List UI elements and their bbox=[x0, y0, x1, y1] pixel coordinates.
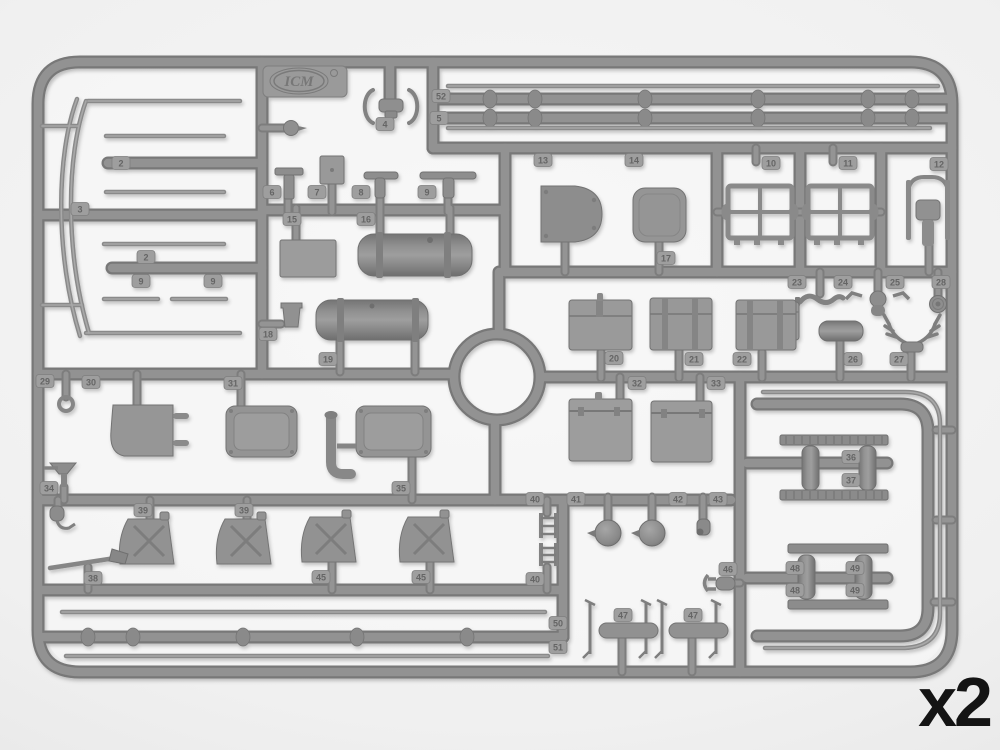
part-number-tag: 15 bbox=[283, 213, 301, 226]
part-number-tag: 32 bbox=[628, 377, 646, 390]
svg-text:14: 14 bbox=[629, 155, 639, 165]
part-seat-31 bbox=[226, 406, 297, 457]
svg-text:50: 50 bbox=[553, 618, 563, 628]
svg-text:29: 29 bbox=[40, 376, 50, 386]
svg-text:48: 48 bbox=[790, 563, 800, 573]
svg-text:5: 5 bbox=[436, 113, 441, 123]
svg-text:13: 13 bbox=[538, 155, 548, 165]
part-number-tag: 25 bbox=[886, 276, 904, 289]
svg-text:15: 15 bbox=[287, 214, 297, 224]
part-number-tag: 24 bbox=[834, 276, 852, 289]
part-number-tag: 12 bbox=[930, 158, 948, 171]
svg-text:52: 52 bbox=[436, 91, 446, 101]
svg-text:47: 47 bbox=[618, 610, 628, 620]
part-number-tag: 10 bbox=[762, 157, 780, 170]
part-number-tag: 33 bbox=[707, 377, 725, 390]
part-lamp-43 bbox=[697, 519, 711, 536]
part-plate-15 bbox=[280, 240, 336, 277]
svg-text:51: 51 bbox=[553, 642, 563, 652]
part-number-tag: 30 bbox=[82, 376, 100, 389]
svg-text:40: 40 bbox=[530, 574, 540, 584]
part-wheel-28 bbox=[930, 296, 947, 313]
part-fuel-tank-16 bbox=[358, 232, 472, 278]
svg-text:9: 9 bbox=[424, 187, 429, 197]
part-number-tag: 26 bbox=[844, 353, 862, 366]
part-number-tag: 39 bbox=[235, 504, 253, 517]
svg-text:33: 33 bbox=[711, 378, 721, 388]
photo-canvas: ICM bbox=[0, 0, 1000, 750]
svg-text:45: 45 bbox=[416, 572, 426, 582]
svg-text:9: 9 bbox=[138, 276, 143, 286]
part-number-tag: 27 bbox=[890, 353, 908, 366]
part-number-tag: 2 bbox=[137, 251, 155, 264]
svg-text:27: 27 bbox=[894, 354, 904, 364]
svg-text:6: 6 bbox=[269, 187, 274, 197]
svg-text:19: 19 bbox=[323, 354, 333, 364]
svg-text:7: 7 bbox=[314, 187, 319, 197]
part-number-tag: 11 bbox=[839, 157, 857, 170]
part-number-tag: 48 bbox=[786, 584, 804, 597]
svg-text:40: 40 bbox=[530, 494, 540, 504]
svg-text:24: 24 bbox=[838, 277, 848, 287]
part-number-tag: 40 bbox=[526, 573, 544, 586]
part-number-tag: 2 bbox=[112, 157, 130, 170]
svg-text:20: 20 bbox=[609, 353, 619, 363]
sprue-photo: ICM bbox=[0, 0, 1000, 750]
part-number-tag: 8 bbox=[352, 186, 370, 199]
part-number-tag: 47 bbox=[684, 609, 702, 622]
svg-text:48: 48 bbox=[790, 585, 800, 595]
brand-logo-text: ICM bbox=[283, 74, 314, 90]
part-number-tag: 40 bbox=[526, 493, 544, 506]
part-number-tag: 19 bbox=[319, 353, 337, 366]
svg-text:41: 41 bbox=[571, 494, 581, 504]
part-number-tag: 9 bbox=[132, 275, 150, 288]
part-number-tag: 4 bbox=[376, 118, 394, 131]
svg-text:21: 21 bbox=[689, 354, 699, 364]
part-box-32 bbox=[569, 392, 632, 461]
svg-text:46: 46 bbox=[723, 564, 733, 574]
part-number-tag: 36 bbox=[842, 451, 860, 464]
svg-text:35: 35 bbox=[396, 483, 406, 493]
svg-text:25: 25 bbox=[890, 277, 900, 287]
svg-text:10: 10 bbox=[766, 158, 776, 168]
brand-logo-plate: ICM bbox=[263, 66, 347, 97]
part-number-tag: 45 bbox=[412, 571, 430, 584]
part-number-tag: 5 bbox=[430, 112, 448, 125]
part-number-tag: 16 bbox=[357, 213, 375, 226]
svg-text:34: 34 bbox=[44, 483, 54, 493]
svg-text:17: 17 bbox=[661, 253, 671, 263]
svg-text:2: 2 bbox=[118, 158, 123, 168]
svg-text:36: 36 bbox=[846, 452, 856, 462]
svg-text:26: 26 bbox=[848, 354, 858, 364]
part-number-tag: 39 bbox=[134, 504, 152, 517]
part-number-tag: 52 bbox=[432, 90, 450, 103]
part-number-tag: 3 bbox=[71, 203, 89, 216]
svg-text:42: 42 bbox=[673, 494, 683, 504]
svg-text:39: 39 bbox=[239, 505, 249, 515]
part-number-tag: 28 bbox=[932, 276, 950, 289]
part-number-tag: 22 bbox=[733, 353, 751, 366]
part-number-tag: 50 bbox=[549, 617, 567, 630]
part-number-tag: 41 bbox=[567, 493, 585, 506]
part-box-33 bbox=[651, 401, 712, 462]
part-number-tag: 47 bbox=[614, 609, 632, 622]
part-number-tag: 21 bbox=[685, 353, 703, 366]
svg-text:39: 39 bbox=[138, 505, 148, 515]
svg-text:2: 2 bbox=[143, 252, 148, 262]
part-number-tag: 42 bbox=[669, 493, 687, 506]
svg-text:38: 38 bbox=[88, 573, 98, 583]
svg-text:32: 32 bbox=[632, 378, 642, 388]
svg-text:12: 12 bbox=[934, 159, 944, 169]
svg-text:37: 37 bbox=[846, 475, 856, 485]
part-seatback-13 bbox=[541, 186, 602, 242]
part-toolbox-21 bbox=[650, 298, 712, 350]
part-cylinder-26 bbox=[819, 321, 863, 341]
svg-text:30: 30 bbox=[86, 377, 96, 387]
svg-text:47: 47 bbox=[688, 610, 698, 620]
part-number-tag: 48 bbox=[786, 562, 804, 575]
svg-text:11: 11 bbox=[843, 158, 853, 168]
part-number-tag: 6 bbox=[263, 186, 281, 199]
svg-text:3: 3 bbox=[77, 204, 82, 214]
part-number-tag: 35 bbox=[392, 482, 410, 495]
part-number-tag: 51 bbox=[549, 641, 567, 654]
svg-text:18: 18 bbox=[263, 329, 273, 339]
part-number-tag: 9 bbox=[204, 275, 222, 288]
part-number-tag: 13 bbox=[534, 154, 552, 167]
part-number-tag: 14 bbox=[625, 154, 643, 167]
svg-text:4: 4 bbox=[382, 119, 387, 129]
quantity-label: x2 bbox=[850, 666, 990, 746]
svg-text:45: 45 bbox=[316, 572, 326, 582]
svg-text:49: 49 bbox=[850, 585, 860, 595]
part-bucket-18 bbox=[281, 303, 302, 327]
svg-text:28: 28 bbox=[936, 277, 946, 287]
part-number-tag: 9 bbox=[418, 186, 436, 199]
part-number-tag: 43 bbox=[709, 493, 727, 506]
part-number-tag: 49 bbox=[846, 584, 864, 597]
svg-text:9: 9 bbox=[210, 276, 215, 286]
part-number-tag: 37 bbox=[842, 474, 860, 487]
part-number-tag: 46 bbox=[719, 563, 737, 576]
part-number-tag: 23 bbox=[788, 276, 806, 289]
part-number-tag: 31 bbox=[224, 377, 242, 390]
part-toolbox-22 bbox=[736, 300, 796, 350]
svg-text:22: 22 bbox=[737, 354, 747, 364]
part-number-tag: 49 bbox=[846, 562, 864, 575]
part-seat-35 bbox=[356, 406, 431, 457]
svg-text:49: 49 bbox=[850, 563, 860, 573]
part-number-tag: 7 bbox=[308, 186, 326, 199]
svg-text:31: 31 bbox=[228, 378, 238, 388]
svg-text:23: 23 bbox=[792, 277, 802, 287]
part-number-tag: 34 bbox=[40, 482, 58, 495]
part-seat-pad-17 bbox=[633, 188, 686, 242]
part-toolbox-20 bbox=[569, 293, 632, 350]
svg-text:8: 8 bbox=[358, 187, 363, 197]
part-number-tag: 17 bbox=[657, 252, 675, 265]
svg-text:16: 16 bbox=[361, 214, 371, 224]
part-number-tag: 18 bbox=[259, 328, 277, 341]
part-number-tag: 20 bbox=[605, 352, 623, 365]
part-number-tag: 29 bbox=[36, 375, 54, 388]
svg-text:43: 43 bbox=[713, 494, 723, 504]
part-number-tag: 45 bbox=[312, 571, 330, 584]
part-number-tag: 38 bbox=[84, 572, 102, 585]
part-fuel-tank-19 bbox=[316, 298, 428, 342]
